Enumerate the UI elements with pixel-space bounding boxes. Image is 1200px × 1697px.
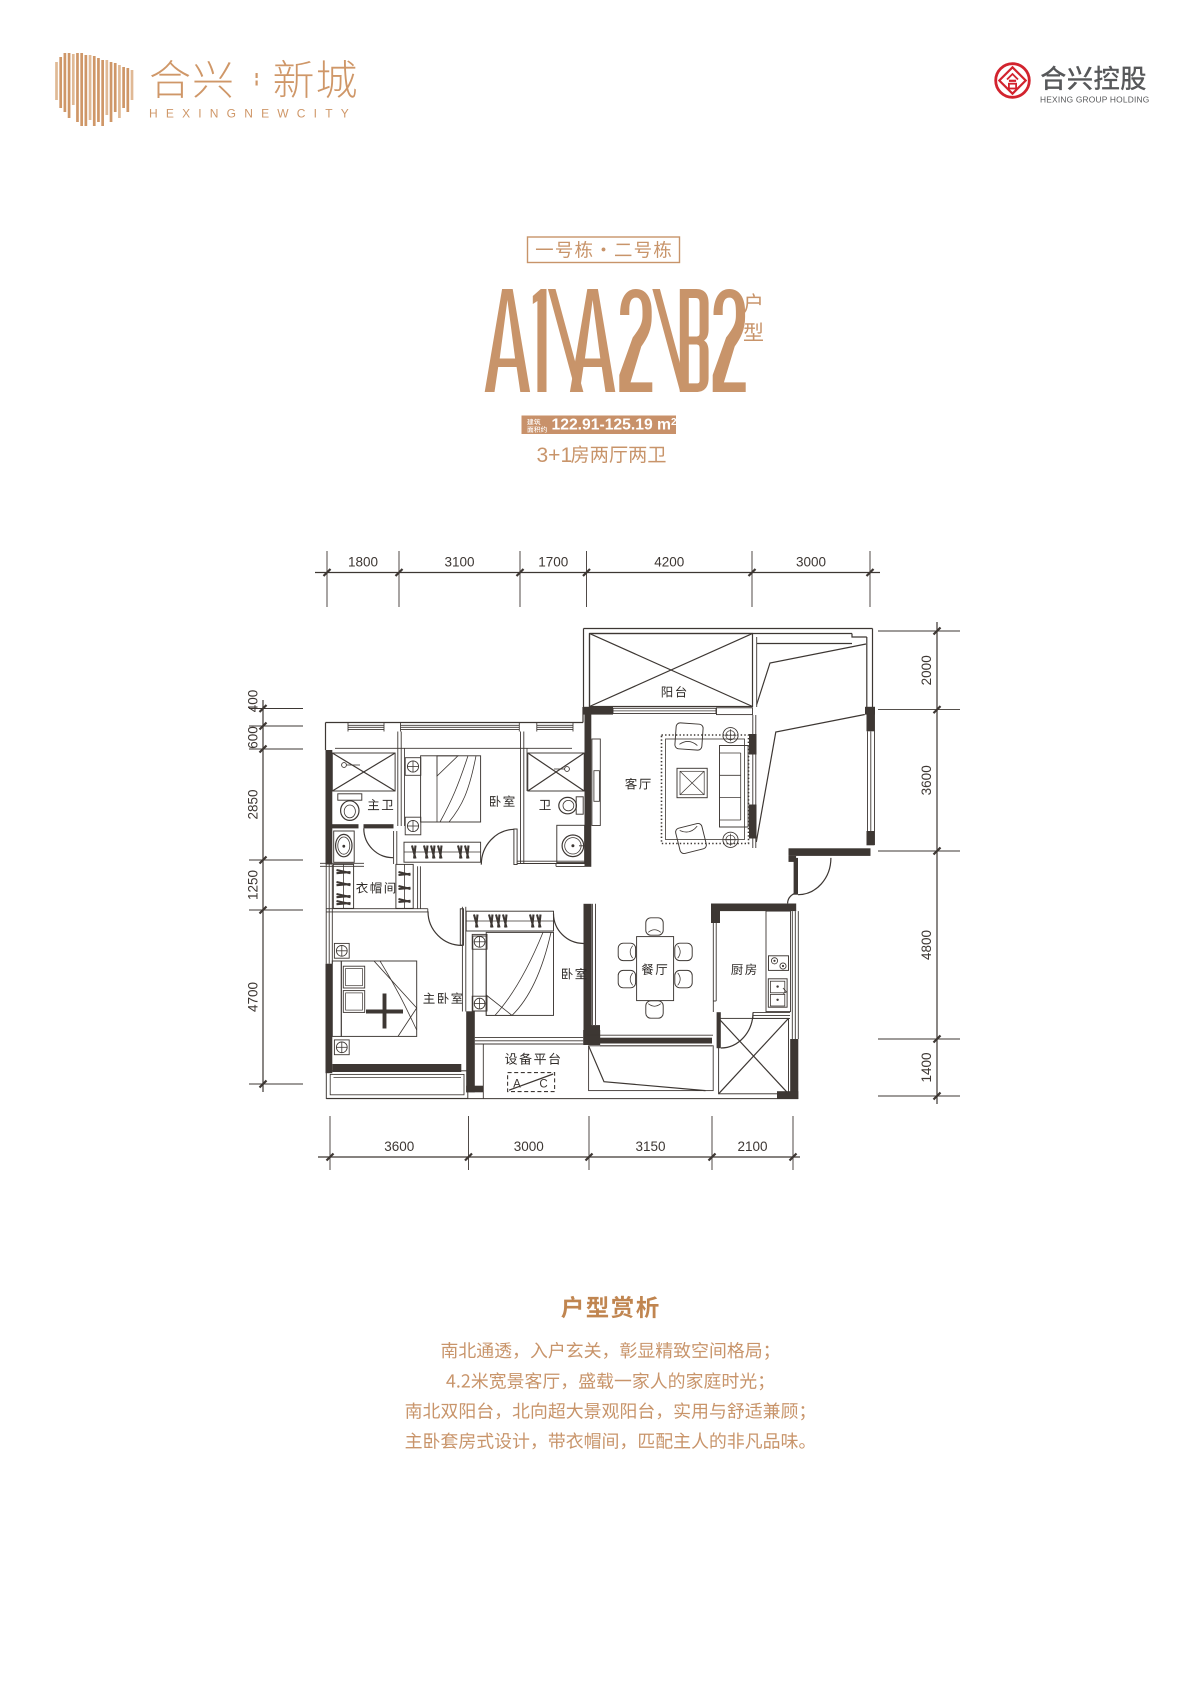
svg-text:3150: 3150 xyxy=(635,1139,665,1154)
svg-text:3600: 3600 xyxy=(384,1139,414,1154)
svg-text:HEXING GROUP HOLDING: HEXING GROUP HOLDING xyxy=(1040,95,1149,105)
svg-text:1400: 1400 xyxy=(919,1052,934,1082)
svg-text:3600: 3600 xyxy=(919,765,934,795)
svg-text:3000: 3000 xyxy=(796,555,826,570)
svg-text:4700: 4700 xyxy=(246,982,261,1012)
svg-text:3100: 3100 xyxy=(444,555,474,570)
svg-text:HEXINGNEWCITY: HEXINGNEWCITY xyxy=(149,107,357,121)
svg-text:3+1: 3+1 xyxy=(537,444,573,467)
svg-text:2100: 2100 xyxy=(737,1139,767,1154)
svg-text:1250: 1250 xyxy=(246,870,261,900)
svg-text:600: 600 xyxy=(246,726,261,749)
svg-text:4800: 4800 xyxy=(919,930,934,960)
svg-text:122.91-125.19 m2: 122.91-125.19 m2 xyxy=(552,417,678,434)
svg-text:1700: 1700 xyxy=(538,555,568,570)
svg-text:C: C xyxy=(539,1078,547,1090)
svg-text:4200: 4200 xyxy=(654,555,684,570)
svg-text:3000: 3000 xyxy=(514,1139,544,1154)
svg-text:1800: 1800 xyxy=(348,555,378,570)
svg-text:2000: 2000 xyxy=(919,655,934,685)
svg-text:A: A xyxy=(513,1078,521,1090)
svg-text:400: 400 xyxy=(246,690,261,713)
svg-text:2850: 2850 xyxy=(246,789,261,819)
